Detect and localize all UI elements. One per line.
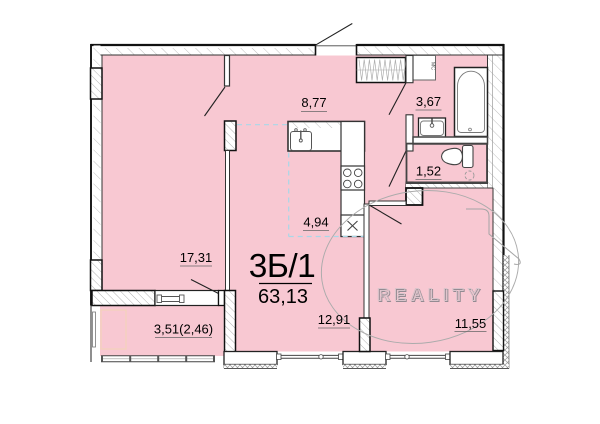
svg-text:63,13: 63,13 [258, 286, 308, 308]
svg-text:11,55: 11,55 [455, 316, 487, 331]
svg-text:12,91: 12,91 [318, 312, 351, 327]
svg-text:8,77: 8,77 [301, 95, 326, 110]
svg-text:МС: МС [430, 62, 436, 71]
svg-text:3,67: 3,67 [416, 94, 441, 109]
svg-text:3Б/1: 3Б/1 [249, 248, 316, 285]
svg-text:1,52: 1,52 [416, 164, 441, 179]
svg-text:REALITY: REALITY [377, 285, 484, 305]
svg-text:3,51(2,46): 3,51(2,46) [154, 322, 213, 337]
svg-text:17,31: 17,31 [180, 250, 213, 265]
svg-text:4,94: 4,94 [303, 215, 328, 230]
